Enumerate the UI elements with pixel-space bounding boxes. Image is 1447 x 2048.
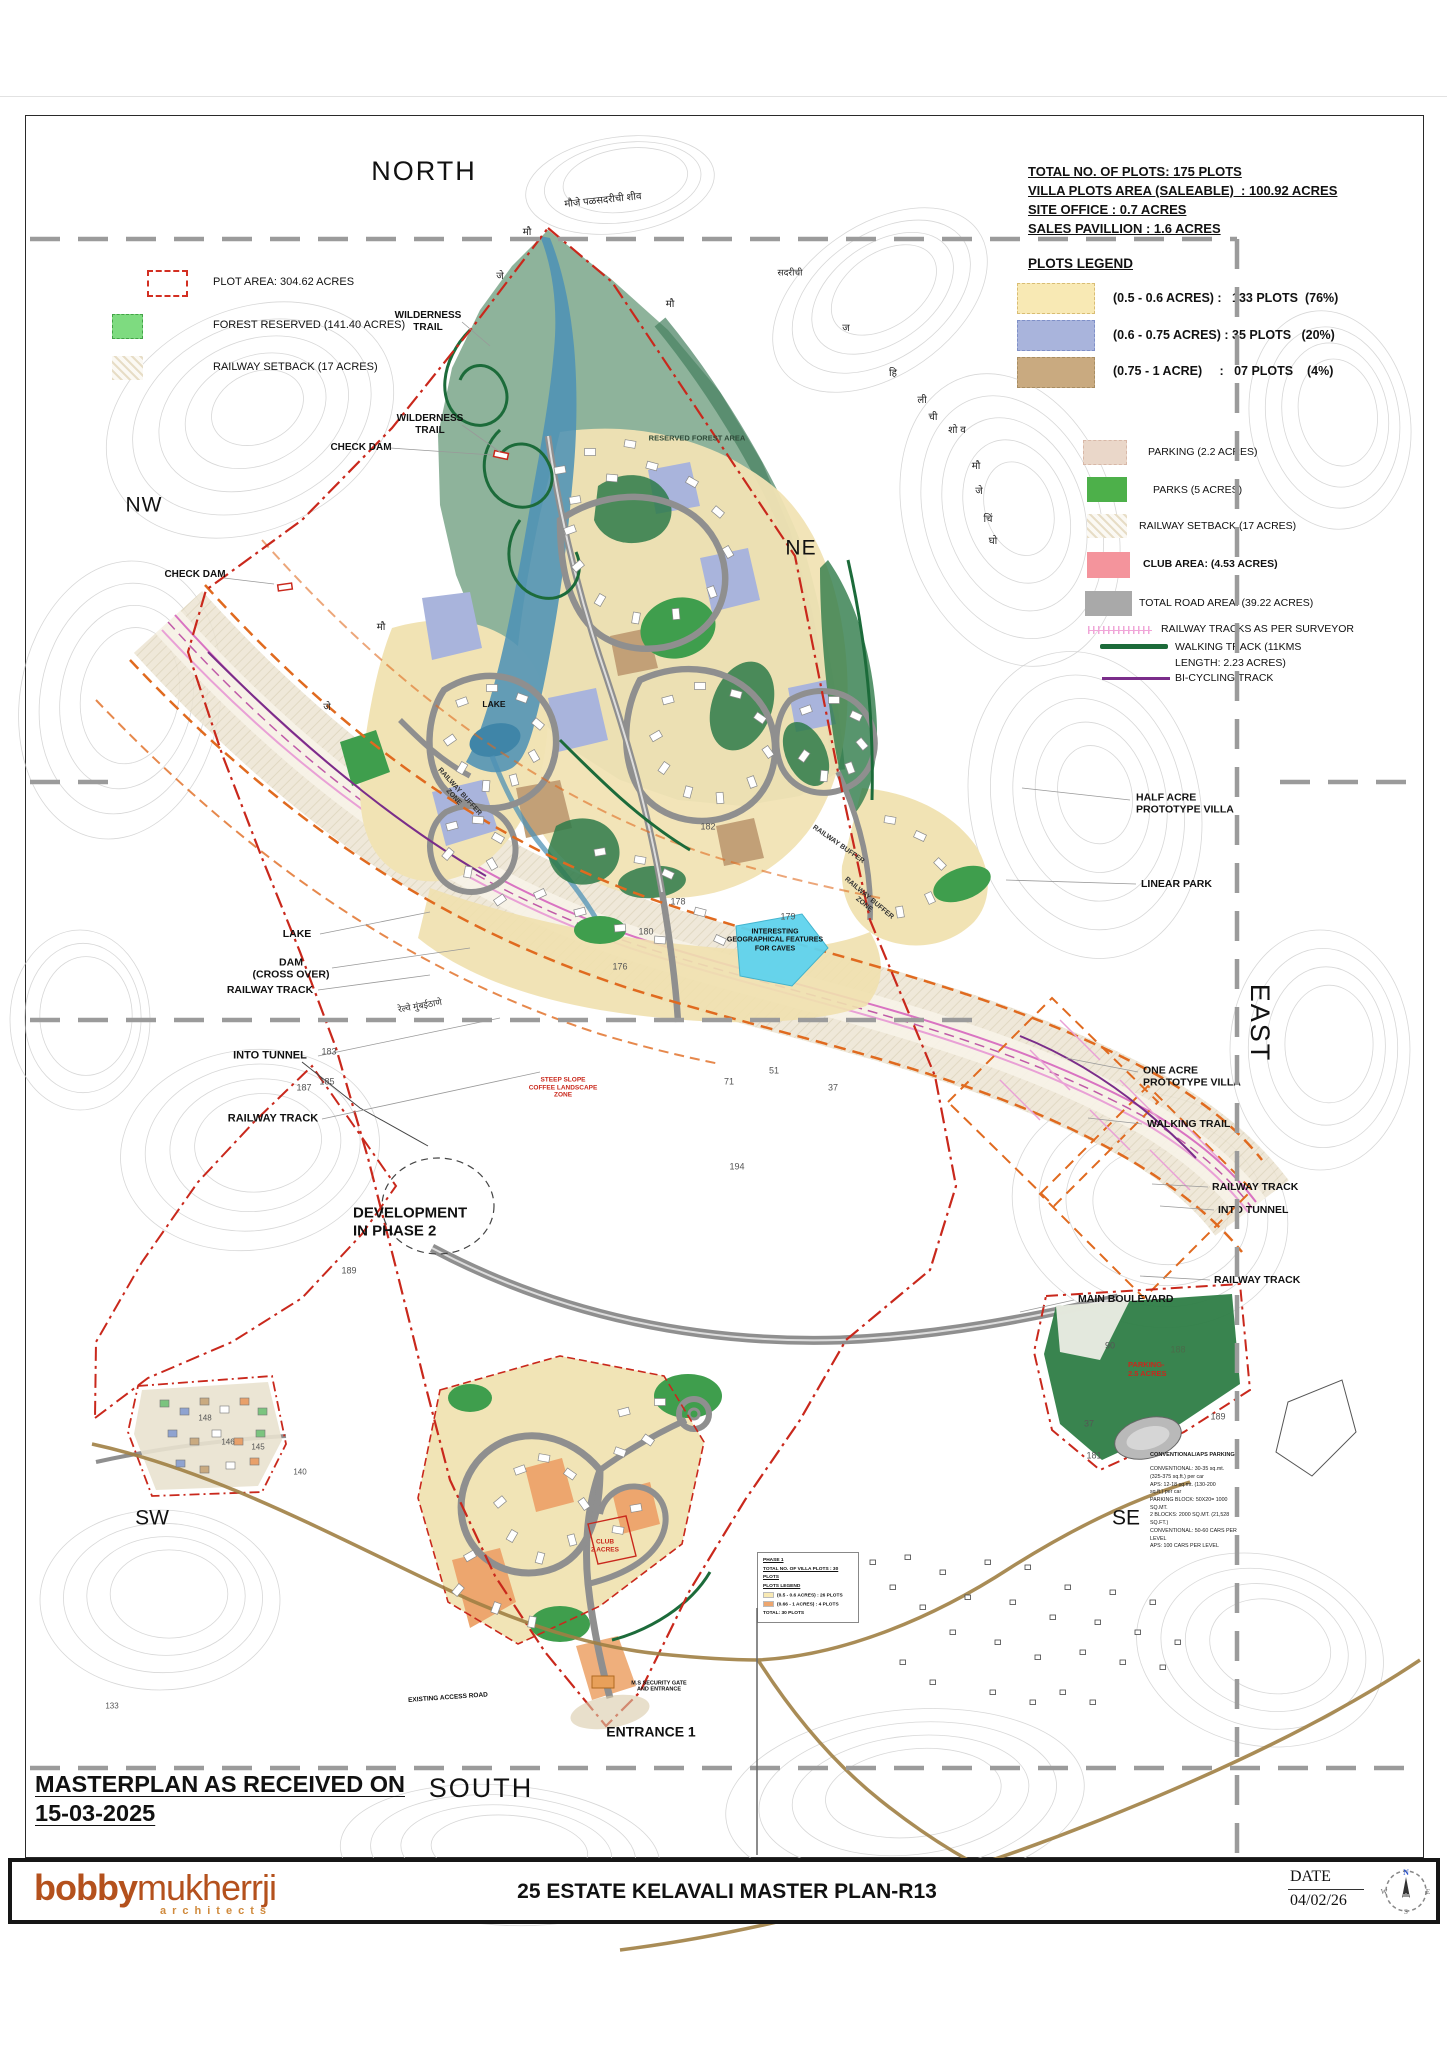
phase1-row2: (0.66 - 1 ACRES) : 4 PLOTS <box>763 1601 853 1610</box>
parking-note-title: CONVENTIONAL/APS PARKING <box>1150 1451 1310 1459</box>
parks-label: PARKS (5 ACRES) <box>1153 484 1242 496</box>
svg-text:E: E <box>1426 1888 1430 1896</box>
plot-small-label: (0.5 - 0.6 ACRES) : 133 PLOTS (76%) <box>1113 291 1338 305</box>
railway-tracks-label: RAILWAY TRACKS AS PER SURVEYOR <box>1161 623 1354 635</box>
date-divider <box>1288 1889 1364 1890</box>
total-plots-line: TOTAL NO. OF PLOTS: 175 PLOTS <box>1028 162 1337 181</box>
railway-setback-label-2: RAILWAY SETBACK (17 ACRES) <box>1139 520 1296 532</box>
received-line2: 15-03-2025 <box>35 1799 405 1828</box>
phase1-subtitle: TOTAL NO. OF VILLA PLOTS : 30 PLOTS <box>763 1566 853 1583</box>
plot-area-label: PLOT AREA: 304.62 ACRES <box>213 276 354 288</box>
entrance-gate <box>592 1676 614 1688</box>
phase1-title: PHASE 1 <box>763 1557 853 1566</box>
plots-legend-title: PLOTS LEGEND <box>1028 256 1133 271</box>
phase1-legend-title: PLOTS LEGEND <box>763 1583 853 1592</box>
plot-boundary-icon <box>147 270 188 297</box>
plot-small-swatch <box>1017 283 1095 314</box>
parks-swatch <box>1087 477 1127 502</box>
date-label: DATE <box>1290 1868 1331 1886</box>
phase1-info-box: PHASE 1 TOTAL NO. OF VILLA PLOTS : 30 PL… <box>757 1552 859 1623</box>
logo-mukherrji: mukherrji <box>137 1867 276 1908</box>
parking-note-body: CONVENTIONAL: 30-35 sq.mt. (325-375 sq.f… <box>1150 1466 1310 1550</box>
phase1-row2-swatch <box>763 1601 774 1608</box>
parking-label: PARKING (2.2 ACRES) <box>1148 446 1258 458</box>
parking-swatch <box>1083 440 1127 465</box>
plot-large-swatch <box>1017 357 1095 388</box>
sheet-title: 25 ESTATE KELAVALI MASTER PLAN-R13 <box>517 1880 937 1904</box>
title-bar: bobbymukherrji architects 25 ESTATE KELA… <box>8 1858 1440 1924</box>
svg-text:W: W <box>1381 1888 1388 1896</box>
architect-logo: bobbymukherrji <box>34 1870 276 1906</box>
svg-text:S: S <box>1404 1908 1408 1916</box>
logo-bobby: bobby <box>34 1867 137 1908</box>
existing-village-structures <box>870 1555 1181 1705</box>
club-label: CLUB AREA: (4.53 ACRES) <box>1143 558 1278 570</box>
phase1-row1-swatch <box>763 1592 774 1599</box>
north-compass-icon: N S W E <box>1380 1865 1432 1917</box>
received-note: MASTERPLAN AS RECEIVED ON 15-03-2025 <box>35 1770 405 1828</box>
phase2-survey-blob <box>382 1158 494 1254</box>
plot-medium-swatch <box>1017 320 1095 351</box>
parking-calc-note: CONVENTIONAL/APS PARKING CONVENTIONAL: 3… <box>1150 1443 1310 1559</box>
railway-tracks-icon <box>1088 626 1152 634</box>
bicycling-track-icon <box>1102 677 1170 680</box>
sales-pavillion-line: SALES PAVILLION : 1.6 ACRES <box>1028 219 1337 238</box>
entrance-plaza <box>568 1689 652 1734</box>
railway-setback-swatch <box>112 356 143 380</box>
phase1-total: TOTAL: 30 PLOTS <box>763 1610 853 1619</box>
plot-summary-block: TOTAL NO. OF PLOTS: 175 PLOTS VILLA PLOT… <box>1028 162 1337 238</box>
phase1-row1: (0.5 - 0.6 ACRES) : 26 PLOTS <box>763 1592 853 1601</box>
road-swatch <box>1085 591 1132 616</box>
plot-medium-label: (0.6 - 0.75 ACRES) : 35 PLOTS (20%) <box>1113 328 1335 342</box>
railway-setback-label: RAILWAY SETBACK (17 ACRES) <box>213 361 378 373</box>
masterplan-map <box>0 0 1447 2048</box>
received-line1: MASTERPLAN AS RECEIVED ON <box>35 1770 405 1799</box>
forest-label: FOREST RESERVED (141.40 ACRES) <box>213 319 405 331</box>
logo-architects: architects <box>160 1905 272 1917</box>
villa-area-line: VILLA PLOTS AREA (SALEABLE) : 100.92 ACR… <box>1028 181 1337 200</box>
walking-track-label: WALKING TRACK (11KMS LENGTH: 2.23 ACRES) <box>1175 639 1301 671</box>
svg-text:N: N <box>1403 1868 1409 1877</box>
plot-large-label: (0.75 - 1 ACRE) : 07 PLOTS (4%) <box>1113 364 1333 378</box>
site-office-line: SITE OFFICE : 0.7 ACRES <box>1028 200 1337 219</box>
club-swatch <box>1087 552 1130 578</box>
forest-swatch <box>112 314 143 339</box>
date-value: 04/02/26 <box>1290 1892 1347 1910</box>
walking-track-icon <box>1100 644 1168 649</box>
road-label: TOTAL ROAD AREA: (39.22 ACRES) <box>1139 597 1313 609</box>
railway-setback-swatch-2 <box>1087 514 1127 538</box>
bicycling-track-label: BI-CYCLING TRACK <box>1175 672 1273 684</box>
parking-area-se <box>1044 1294 1240 1466</box>
masterplan-sheet: { "header_info": { "lines": [ "TOTAL NO.… <box>0 0 1447 2048</box>
